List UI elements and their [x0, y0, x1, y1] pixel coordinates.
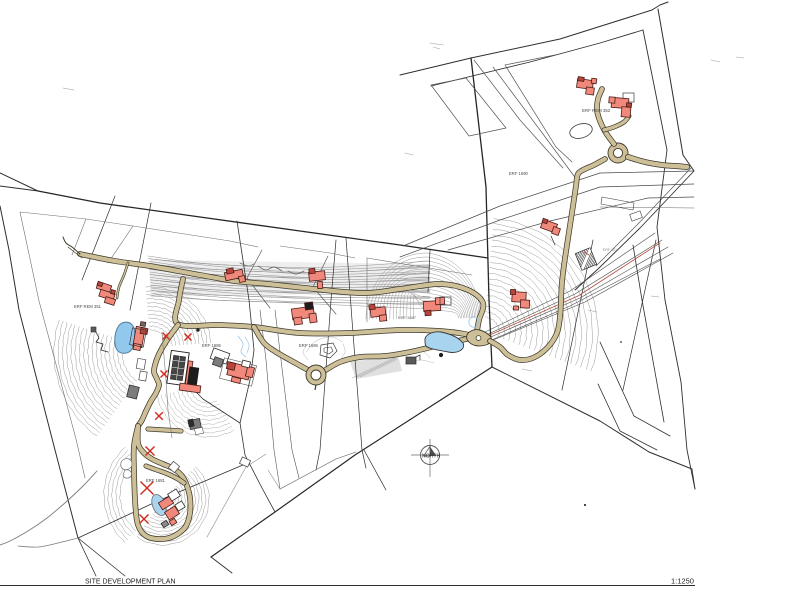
svg-text:ERF 1686: ERF 1686	[299, 343, 319, 348]
svg-text:ERF 301: ERF 301	[603, 248, 617, 252]
svg-text:ERF 1687: ERF 1687	[398, 315, 417, 320]
svg-text:ERF REM 351: ERF REM 351	[74, 304, 102, 309]
svg-text:ERF REM 352: ERF REM 352	[582, 108, 611, 113]
svg-text:ERF 1685: ERF 1685	[202, 343, 222, 348]
svg-text:NORTH: NORTH	[422, 454, 441, 460]
svg-text:ERF 1681: ERF 1681	[146, 478, 166, 483]
svg-text:ERF 1690: ERF 1690	[509, 171, 529, 176]
svg-text:SITE DEVELOPMENT PLAN: SITE DEVELOPMENT PLAN	[85, 579, 176, 586]
svg-text:1:1250: 1:1250	[671, 577, 694, 586]
